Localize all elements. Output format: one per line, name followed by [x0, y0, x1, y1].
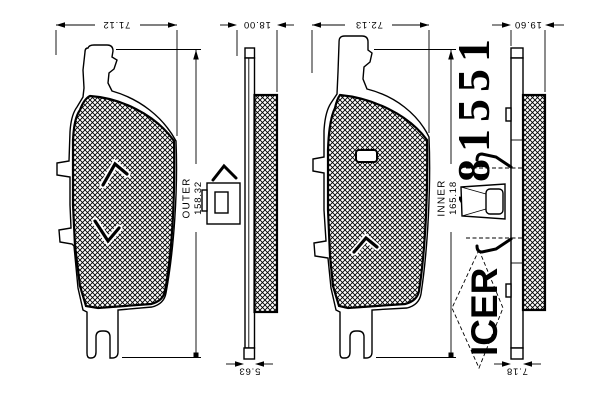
inner-pad-front-view: [313, 36, 430, 358]
dim-end-square: [194, 353, 199, 358]
inner-pad-stamp-box: [356, 150, 377, 162]
outer-edge-shim-cap: [245, 48, 255, 58]
inner-pad-label: INNER: [437, 179, 448, 216]
dim-arrow-right: [168, 22, 177, 28]
outer-thickness-dimension: 18.00: [220, 19, 294, 92]
dim-arrow-right: [502, 22, 511, 28]
dim-arrow-left: [312, 22, 321, 28]
outer-pad-edge-view: [202, 48, 277, 359]
inner-edge-shim-cap: [511, 48, 523, 58]
inner-edge-backplate: [511, 58, 523, 348]
outer-plate-thickness-value: 5.63: [239, 366, 261, 377]
inner-thickness-dimension: 19.60: [492, 19, 564, 92]
inner-edge-tab-upper: [506, 108, 511, 121]
outer-edge-friction: [255, 95, 278, 312]
dim-arrow-up: [193, 50, 199, 60]
inner-edge-foot: [511, 348, 523, 359]
outer-width-value: 71.12: [103, 19, 131, 30]
brand-logo: ICER: [452, 250, 505, 368]
inner-edge-tab-lower: [506, 284, 511, 297]
drawing-canvas: 71.12 OUTER 158.32 18.00: [0, 0, 600, 400]
dim-arrow-left: [277, 22, 286, 28]
inner-width-value: 72.13: [355, 19, 383, 30]
dim-arrow-right: [228, 22, 237, 28]
inner-edge-friction: [523, 95, 545, 310]
outer-pad-label: OUTER: [182, 178, 193, 219]
outer-pad-friction-surface: [73, 96, 174, 308]
inner-thickness-value: 19.60: [514, 19, 542, 30]
outer-thickness-value: 18.00: [243, 19, 271, 30]
dim-arrow-left: [56, 22, 65, 28]
outer-edge-foot: [244, 348, 255, 359]
dim-arrow-left: [545, 22, 554, 28]
outer-pad-front-view: [57, 45, 177, 358]
dim-arrow-right: [420, 22, 429, 28]
inner-plate-thickness-value: 7.18: [506, 366, 528, 377]
wear-sensor-hook-lower: [477, 239, 511, 252]
retainer-clip-tab: [202, 190, 207, 211]
inner-plate-thickness-dimension: 7.18: [494, 361, 541, 376]
piston-shim-window: [486, 189, 503, 214]
outer-plate-thickness-dimension: 5.63: [226, 361, 273, 376]
retainer-clip-spring: [213, 166, 236, 180]
inner-pad-friction-surface: [328, 95, 427, 308]
brand-name: ICER: [464, 268, 505, 356]
technical-drawing: 71.12 OUTER 158.32 18.00: [0, 0, 600, 400]
outer-edge-backplate: [245, 58, 255, 348]
dim-end-square: [449, 353, 454, 358]
retainer-clip-window: [215, 192, 228, 213]
